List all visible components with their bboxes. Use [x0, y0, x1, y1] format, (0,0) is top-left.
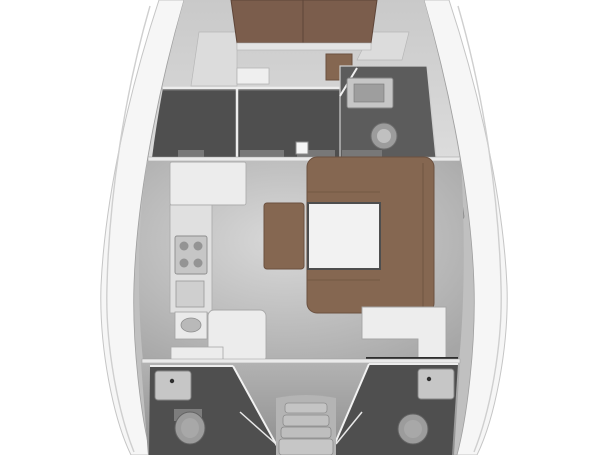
bed-foot-board [237, 43, 371, 50]
floorplan-svg [0, 0, 607, 455]
forward-head-sink-basin [354, 84, 384, 102]
aft-head-starboard-toilet-seat [404, 420, 422, 438]
port-side-shelf [191, 32, 237, 86]
forward-head [340, 66, 436, 158]
aft-head-port-faucet [170, 379, 174, 383]
stair-tread-1 [285, 403, 327, 413]
stair-tread-2 [283, 415, 329, 426]
galley-top-counter [170, 162, 246, 205]
aft-head-starboard-sink [418, 369, 454, 399]
aft-head-port-sink [155, 371, 191, 400]
galley-oven [176, 281, 204, 307]
aft-head-port-toilet-seat [181, 418, 199, 438]
aft-head-starboard-faucet [427, 377, 431, 381]
galley-stove [175, 236, 207, 274]
companionway-stairs [276, 395, 336, 455]
salon [139, 142, 464, 368]
aft-bulkhead [142, 359, 460, 363]
stair-tread-4 [279, 439, 333, 455]
stove-burner [180, 259, 189, 268]
window [178, 150, 204, 157]
forward-cabin-seat [237, 68, 269, 84]
galley-sink [181, 318, 201, 332]
forward-head-toilet-seat [377, 129, 391, 143]
window [240, 150, 284, 157]
salon-table [308, 203, 380, 269]
aft-section [141, 363, 460, 455]
v-berth-bed [231, 0, 377, 43]
mast-post [296, 142, 308, 154]
forward-cabin-floor [152, 88, 340, 158]
bench-seat [264, 203, 304, 269]
yacht-floorplan-image [0, 0, 607, 455]
stove-burner [194, 242, 203, 251]
stove-burner [180, 242, 189, 251]
window [342, 150, 382, 157]
stove-burner [194, 259, 203, 268]
stair-tread-3 [281, 427, 331, 438]
